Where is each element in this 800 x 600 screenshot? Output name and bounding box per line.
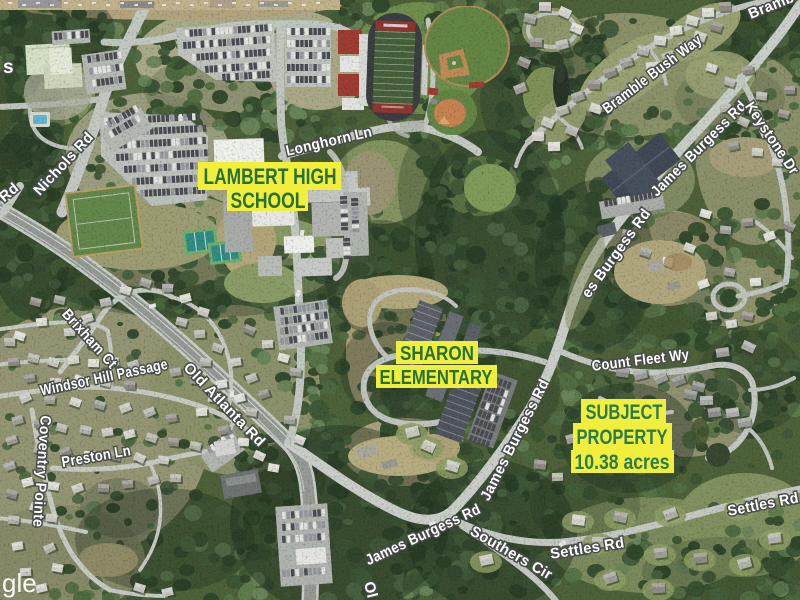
svg-text:s: s (3, 57, 14, 78)
svg-text:gle: gle (2, 568, 37, 598)
svg-text:ELEMENTARY: ELEMENTARY (380, 367, 494, 389)
svg-text:SHARON: SHARON (400, 343, 474, 365)
svg-text:10.38 acres: 10.38 acres (575, 451, 670, 474)
svg-text:SUBJECT: SUBJECT (586, 401, 663, 424)
svg-text:LAMBERT HIGH: LAMBERT HIGH (204, 164, 337, 189)
svg-text:PROPERTY: PROPERTY (577, 426, 668, 449)
svg-text:SCHOOL: SCHOOL (231, 188, 306, 213)
